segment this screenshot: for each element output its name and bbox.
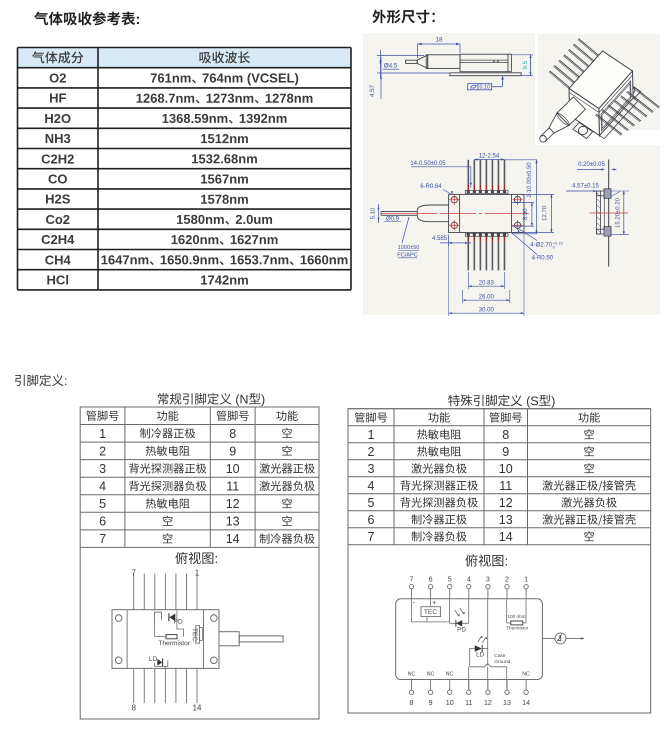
svg-text:9: 9 (502, 445, 509, 459)
svg-text:4: 4 (368, 479, 375, 493)
svg-text:12-2.54: 12-2.54 (479, 154, 500, 160)
svg-text:CO: CO (48, 172, 68, 187)
svg-text:6-R0.64: 6-R0.64 (420, 184, 442, 190)
svg-text:1: 1 (524, 575, 528, 583)
svg-text:CH4: CH4 (45, 252, 72, 267)
svg-text:Thermistor: Thermistor (506, 626, 528, 631)
svg-text:4: 4 (467, 575, 471, 583)
svg-text:H2S: H2S (45, 192, 71, 207)
svg-text:0.20±0.05: 0.20±0.05 (578, 162, 605, 168)
svg-text:6: 6 (368, 513, 375, 527)
svg-text:6: 6 (99, 515, 106, 529)
svg-text:9: 9 (229, 444, 236, 458)
svg-text:4-Ø2.70: 4-Ø2.70 (530, 243, 552, 249)
svg-text:Co2: Co2 (45, 212, 70, 227)
svg-text:10: 10 (499, 462, 513, 476)
svg-text:14: 14 (193, 704, 202, 713)
svg-text:10: 10 (226, 462, 240, 476)
svg-text:14: 14 (499, 530, 513, 544)
svg-text:5: 5 (368, 496, 375, 510)
svg-text:12: 12 (484, 699, 492, 707)
svg-text:NC: NC (427, 672, 435, 678)
svg-text:O2: O2 (49, 71, 66, 86)
svg-text:8: 8 (131, 704, 136, 713)
svg-text:NH3: NH3 (45, 131, 71, 146)
svg-text:8: 8 (410, 699, 414, 707)
svg-text:4-R0.50: 4-R0.50 (532, 256, 554, 262)
svg-text:12: 12 (499, 496, 513, 510)
svg-text:1: 1 (195, 569, 200, 578)
svg-text:2: 2 (505, 575, 509, 583)
svg-text:3: 3 (486, 575, 490, 583)
svg-text:20.83: 20.83 (479, 280, 495, 286)
svg-text:10: 10 (446, 699, 454, 707)
svg-text:3: 3 (99, 462, 106, 476)
svg-text:+: + (432, 600, 436, 607)
svg-text:NC: NC (408, 672, 416, 678)
svg-text:Case: Case (494, 653, 506, 659)
svg-text:PD: PD (457, 627, 466, 634)
svg-text:LD: LD (149, 656, 158, 663)
svg-text:4.57±0.15: 4.57±0.15 (572, 184, 599, 190)
svg-text:7: 7 (131, 569, 136, 578)
svg-text:6: 6 (429, 575, 433, 583)
svg-text:13: 13 (226, 515, 240, 529)
svg-text:14: 14 (522, 699, 530, 707)
svg-text:100 ohm: 100 ohm (508, 614, 526, 619)
svg-text:14: 14 (226, 532, 240, 546)
svg-text:11: 11 (226, 480, 239, 494)
svg-text:LD: LD (476, 651, 485, 658)
svg-text:14-0.50±0.05: 14-0.50±0.05 (410, 161, 446, 167)
svg-text:5: 5 (99, 497, 106, 511)
svg-text:1000±50: 1000±50 (398, 245, 420, 251)
svg-text:Ø4.5: Ø4.5 (384, 63, 398, 70)
svg-text:NC: NC (446, 672, 454, 678)
svg-text:C2H2: C2H2 (41, 151, 74, 166)
svg-text:30.00: 30.00 (479, 307, 495, 313)
svg-text:8: 8 (502, 428, 509, 442)
svg-text:11: 11 (465, 699, 472, 707)
svg-text:26.00: 26.00 (479, 294, 495, 300)
svg-text:H2O: H2O (44, 111, 71, 126)
svg-text:7: 7 (410, 575, 414, 583)
svg-text:1: 1 (368, 428, 375, 442)
svg-text:7: 7 (368, 530, 375, 544)
svg-text:HF: HF (49, 91, 66, 106)
svg-text:HCl: HCl (47, 273, 69, 288)
svg-text:8: 8 (229, 427, 236, 441)
svg-text:2: 2 (368, 445, 375, 459)
svg-text:11: 11 (499, 479, 512, 493)
svg-text:1: 1 (99, 427, 106, 441)
svg-text:4.585: 4.585 (432, 236, 448, 242)
svg-text:13: 13 (499, 513, 513, 527)
svg-text:3: 3 (368, 462, 375, 476)
svg-text:C2H4: C2H4 (41, 232, 75, 247)
svg-text:0.10: 0.10 (480, 85, 491, 91)
svg-text:9: 9 (429, 699, 433, 707)
svg-text:7: 7 (99, 532, 106, 546)
svg-text:Ground: Ground (494, 659, 510, 665)
svg-text:2: 2 (99, 444, 106, 458)
svg-text:5: 5 (448, 575, 452, 583)
svg-text:NC: NC (522, 672, 530, 678)
svg-text:PD: PD (174, 619, 183, 626)
svg-text:13: 13 (503, 699, 511, 707)
svg-text:18: 18 (435, 37, 443, 44)
svg-text:12: 12 (226, 497, 240, 511)
svg-text:4: 4 (99, 480, 106, 494)
